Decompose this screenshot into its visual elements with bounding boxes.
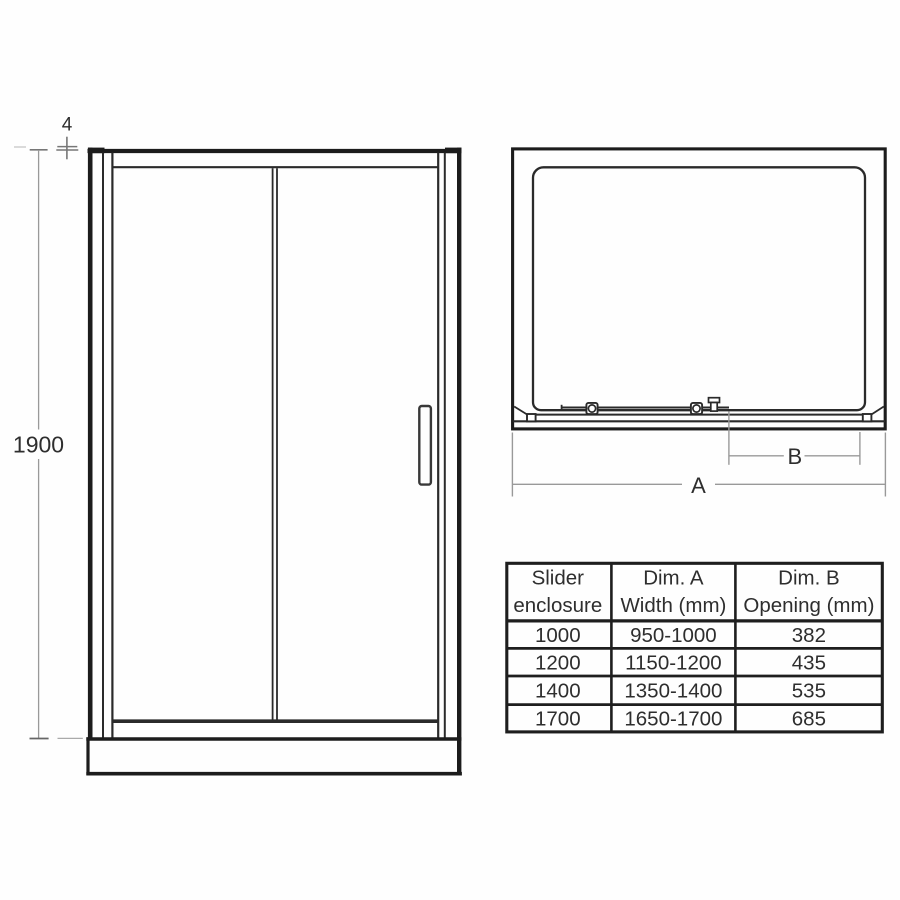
- svg-text:Width (mm): Width (mm): [620, 594, 726, 617]
- svg-text:4: 4: [62, 115, 73, 136]
- svg-text:B: B: [787, 444, 802, 469]
- svg-text:1400: 1400: [535, 679, 581, 702]
- svg-text:Dim. A: Dim. A: [643, 567, 704, 590]
- svg-text:435: 435: [792, 651, 826, 674]
- svg-text:Slider: Slider: [532, 567, 585, 590]
- svg-text:535: 535: [792, 679, 826, 702]
- svg-text:382: 382: [792, 624, 826, 647]
- svg-text:1700: 1700: [535, 707, 581, 730]
- svg-text:1650-1700: 1650-1700: [624, 707, 722, 730]
- svg-text:950-1000: 950-1000: [630, 624, 717, 647]
- svg-text:1000: 1000: [535, 624, 581, 647]
- svg-text:1900: 1900: [13, 432, 64, 458]
- svg-text:Dim. B: Dim. B: [778, 567, 840, 590]
- svg-text:685: 685: [792, 707, 826, 730]
- svg-text:1150-1200: 1150-1200: [625, 651, 722, 674]
- svg-text:1350-1400: 1350-1400: [624, 679, 722, 702]
- svg-text:Opening (mm): Opening (mm): [743, 594, 874, 617]
- svg-text:enclosure: enclosure: [513, 594, 602, 617]
- svg-text:A: A: [691, 473, 706, 498]
- svg-text:1200: 1200: [535, 651, 581, 674]
